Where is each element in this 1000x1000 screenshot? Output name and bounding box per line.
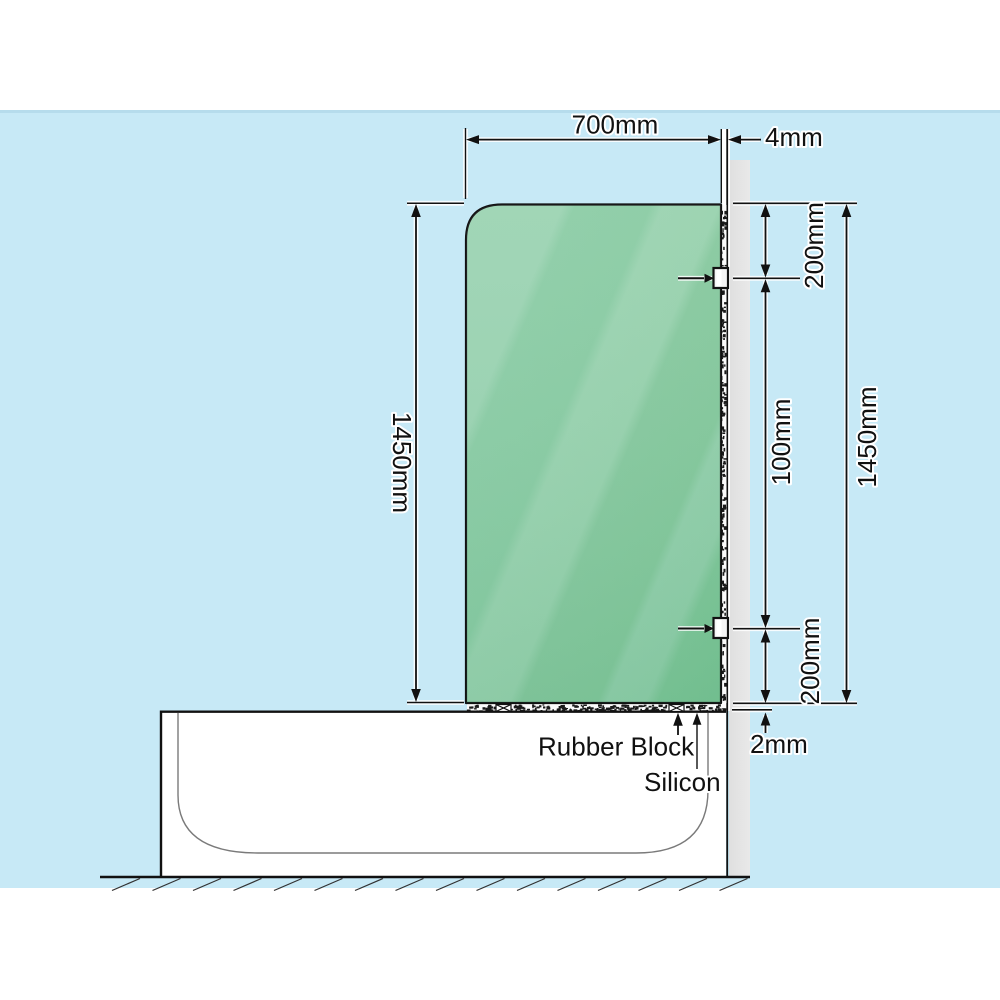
svg-text:200mm: 200mm <box>799 202 829 289</box>
svg-text:4mm: 4mm <box>765 122 823 152</box>
svg-text:700mm: 700mm <box>572 110 659 140</box>
svg-text:1450mm: 1450mm <box>387 412 417 513</box>
svg-text:2mm: 2mm <box>750 729 808 759</box>
svg-text:Silicon: Silicon <box>644 767 721 797</box>
svg-text:1450mm: 1450mm <box>852 386 882 487</box>
svg-text:Rubber Block: Rubber Block <box>538 732 695 762</box>
svg-text:100mm: 100mm <box>766 399 796 486</box>
svg-text:200mm: 200mm <box>795 618 825 705</box>
